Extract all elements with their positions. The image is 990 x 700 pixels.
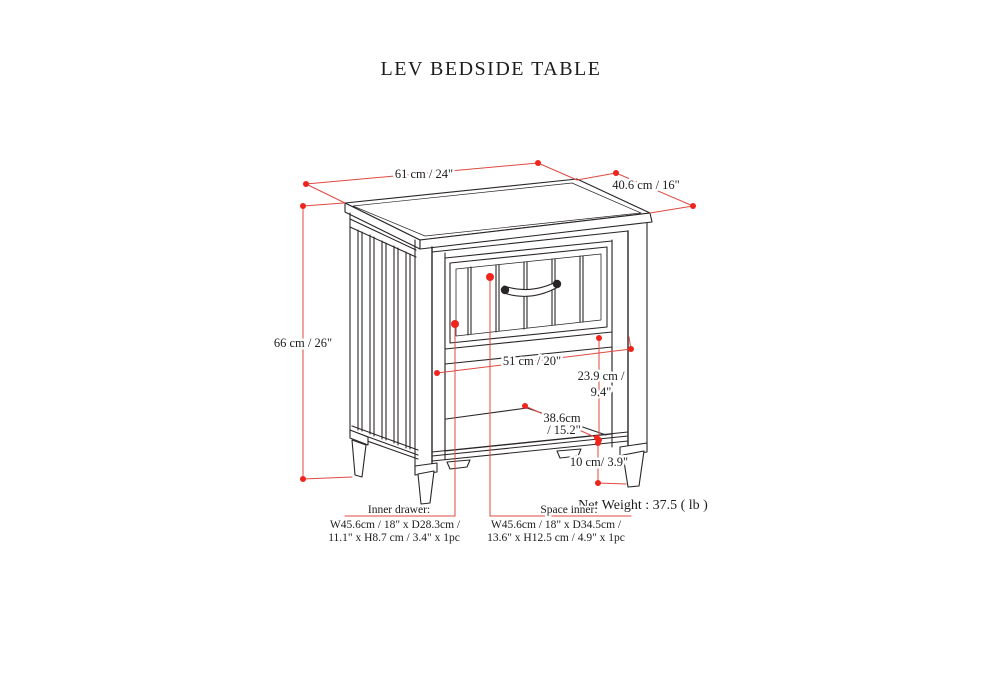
marker-dot [300, 476, 306, 482]
marker-dot [596, 335, 602, 341]
left-side-panel [350, 213, 418, 459]
drawer [445, 241, 612, 349]
marker-dot [595, 440, 601, 446]
marker-dot [486, 273, 494, 281]
dim-ext-height-bottom [303, 477, 352, 479]
page-title: LEV BEDSIDE TABLE [381, 58, 602, 80]
dimension-diagram: LEV BEDSIDE TABLE 61 cm / 24" 40.6 cm / … [0, 0, 990, 700]
dim-overall-height-label: 66 cm / 26" [274, 336, 332, 350]
drawer-handle-left-cap [501, 286, 509, 294]
inner-drawer-spec-line1: W45.6cm / 18" x D28.3cm / [330, 519, 461, 531]
marker-dot [535, 160, 541, 166]
dim-leg-height-label: 10 cm/ 3.9" [570, 455, 628, 469]
marker-dot [613, 170, 619, 176]
dim-ext-leg-height [598, 483, 626, 484]
space-inner-title: Space inner: [540, 504, 597, 516]
marker-dot [628, 346, 634, 352]
dim-opening-width-label: 51 cm / 20" [503, 354, 561, 368]
rail-bracket-left [447, 460, 470, 469]
inner-drawer-spec-line2: 11.1" x H8.7 cm / 3.4" x 1pc [328, 532, 460, 544]
front-left-leg [415, 463, 437, 504]
space-inner-spec-line2: 13.6" x H12.5 cm / 4.9" x 1pc [487, 532, 625, 544]
net-weight-label: Net Weight : 37.5 ( lb ) [578, 498, 708, 513]
marker-dot [303, 181, 309, 187]
marker-dot [595, 480, 601, 486]
dim-shelf-depth-label-line2: / 15.2" [547, 423, 581, 437]
marker-dot [690, 203, 696, 209]
marker-dot [522, 403, 528, 409]
dim-ext-top-depth-right [650, 206, 693, 213]
dim-opening-height-label-line1: 23.9 cm / [578, 369, 625, 383]
inner-drawer-title: Inner drawer: [368, 504, 430, 516]
marker-dot [451, 320, 459, 328]
dim-ext-height-top [303, 203, 344, 206]
marker-dot [594, 435, 600, 441]
marker-dot [300, 203, 306, 209]
marker-dot [434, 370, 440, 376]
back-left-leg [350, 430, 368, 477]
space-inner-spec-line1: W45.6cm / 18" x D34.5cm / [491, 519, 622, 531]
dim-opening-height-label-line2: 9.4" [591, 385, 612, 399]
spec-sheet-page: LEV BEDSIDE TABLE 61 cm / 24" 40.6 cm / … [0, 0, 990, 700]
dim-ext-top-width-right [538, 163, 577, 180]
dim-ext-top-depth-left [577, 173, 616, 180]
dim-top-width-label: 61 cm / 24" [395, 167, 453, 181]
drawer-handle-right-cap [553, 280, 561, 288]
dim-top-depth-label: 40.6 cm / 16" [612, 178, 680, 192]
dim-ext-top-width-left [306, 184, 345, 203]
